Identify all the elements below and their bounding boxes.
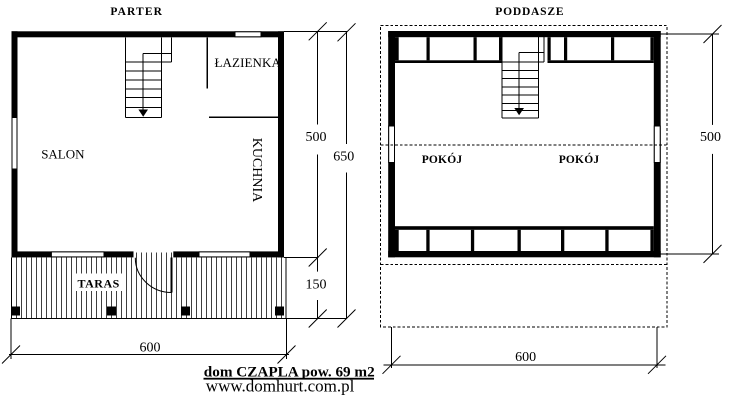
svg-text:650: 650 bbox=[333, 150, 354, 165]
svg-text:150: 150 bbox=[306, 278, 327, 293]
svg-text:500: 500 bbox=[306, 130, 327, 145]
svg-text:600: 600 bbox=[140, 341, 161, 356]
svg-text:TARAS: TARAS bbox=[78, 277, 120, 291]
svg-text:SALON: SALON bbox=[41, 147, 85, 162]
svg-text:PODDASZE: PODDASZE bbox=[495, 6, 564, 18]
svg-text:POKÓJ: POKÓJ bbox=[422, 152, 463, 166]
svg-text:www.domhurt.com.pl: www.domhurt.com.pl bbox=[206, 377, 355, 396]
svg-text:PARTER: PARTER bbox=[110, 6, 163, 18]
svg-text:POKÓJ: POKÓJ bbox=[559, 152, 600, 166]
svg-text:600: 600 bbox=[515, 350, 536, 365]
svg-text:ŁAZIENKA: ŁAZIENKA bbox=[215, 55, 282, 70]
svg-text:KUCHNIA: KUCHNIA bbox=[249, 138, 264, 203]
svg-text:500: 500 bbox=[700, 130, 721, 145]
